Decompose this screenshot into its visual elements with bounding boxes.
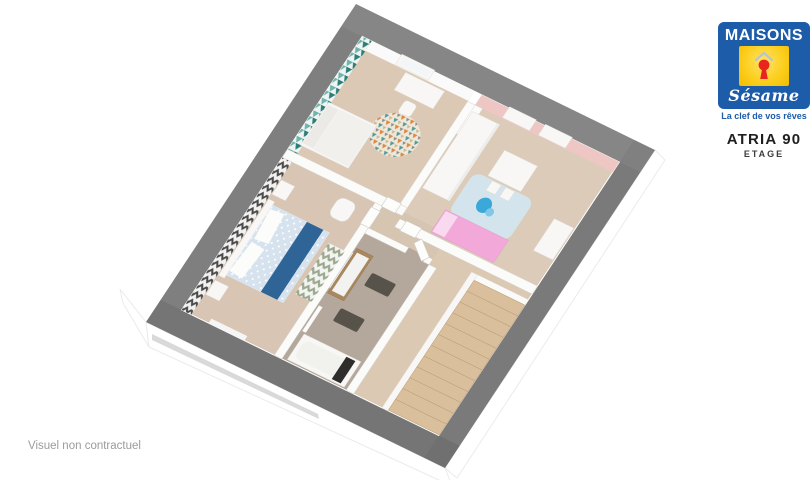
- floor-plan-canvas: MAISONS Sésame La clef de vos rêves ATRI…: [0, 0, 811, 480]
- brand-name-bottom: Sésame: [728, 86, 799, 106]
- brand-tagline: La clef de vos rêves: [706, 111, 811, 121]
- roof-caret-icon: [756, 53, 772, 60]
- floor-plan-3d: [0, 0, 811, 480]
- plan-projection: [146, 4, 655, 468]
- model-title: ATRIA 90: [702, 131, 811, 148]
- floor-label: ETAGE: [702, 149, 811, 159]
- facade-left-gable: [120, 289, 149, 347]
- disclaimer-text: Visuel non contractuel: [28, 440, 141, 452]
- logo-yellow-square: [739, 46, 789, 86]
- brand-logo: MAISONS Sésame: [718, 22, 810, 109]
- brand-name-top: MAISONS: [725, 27, 803, 44]
- keyhole-house-icon: [739, 46, 789, 86]
